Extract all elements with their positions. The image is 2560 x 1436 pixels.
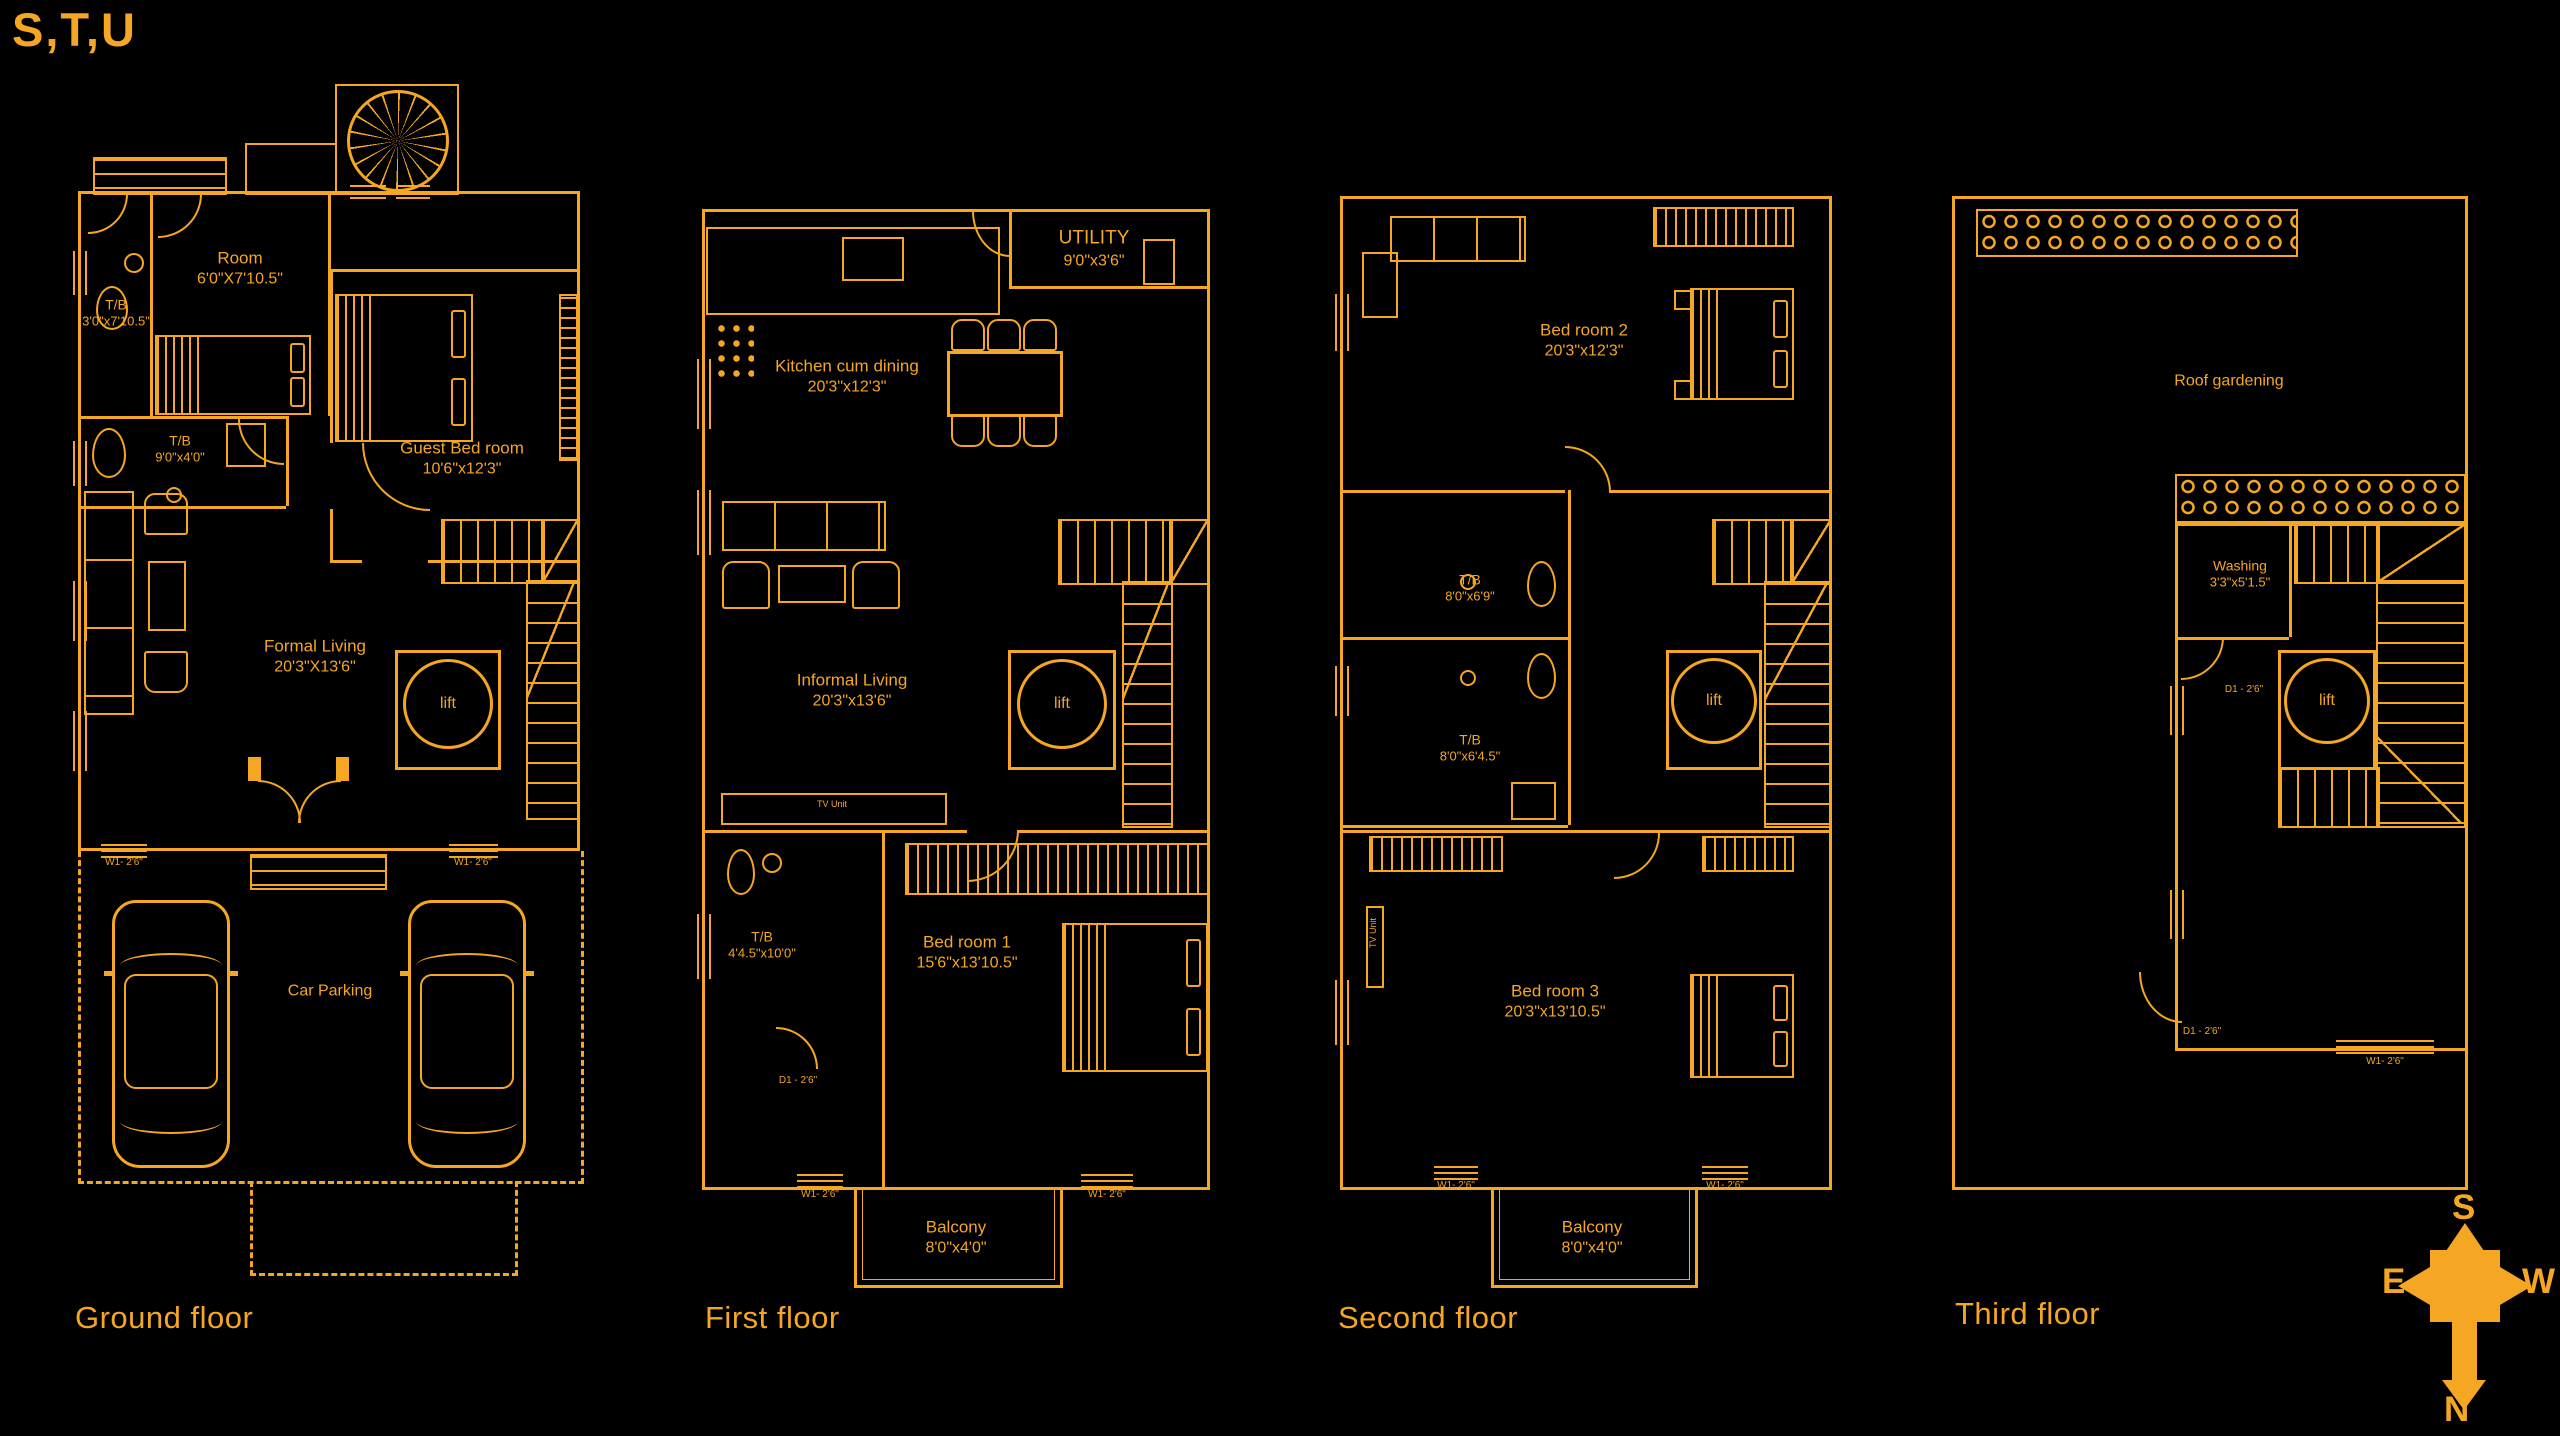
dining-chair (951, 319, 985, 351)
armchair (852, 561, 900, 609)
stair-diagonal (2376, 736, 2462, 824)
room-label-guest: Guest Bed room 10'6"x12'3" (400, 438, 524, 481)
wall (330, 509, 333, 560)
toilet-icon (92, 428, 126, 478)
rear-window (416, 1108, 518, 1134)
room-label-tb1: T/B 3'0"x7'10.5" (82, 295, 150, 330)
room-label-kitchen: Kitchen cum dining 20'3"x12'3" (775, 356, 919, 399)
ground-floor-label: Ground floor (75, 1300, 253, 1336)
window (396, 185, 430, 199)
room-label-washing: Washing 3'3"x5'1.5" (2210, 556, 2270, 591)
wardrobe (905, 843, 1209, 895)
mirror (400, 971, 409, 976)
tv-console (721, 793, 947, 825)
compass-point-top (2446, 1223, 2484, 1251)
stair-run (1058, 519, 1173, 585)
stair-diagonal (1169, 519, 1209, 585)
room-label-bed3: Bed room 3 20'3"x13'10.5" (1504, 981, 1605, 1024)
car-icon (408, 900, 526, 1168)
lift-label: lift (1054, 695, 1070, 713)
stair-diagonal (2376, 523, 2466, 584)
floor-plan-sheet: S,T,U (0, 0, 2560, 1436)
wall (1609, 490, 1832, 493)
compass-arrow-shaft (2452, 1322, 2477, 1380)
wall (330, 269, 333, 443)
stair-diagonal (541, 519, 579, 584)
mirror (229, 971, 238, 976)
door-tag: D1 - 2'6" (779, 1075, 817, 1086)
spiral-stair-icon (347, 90, 449, 192)
window (697, 914, 711, 979)
window (1335, 980, 1349, 1045)
bed (1690, 974, 1794, 1078)
pillow (451, 378, 466, 426)
room-label-utility: UTILITY 9'0"x3'6" (1059, 226, 1130, 271)
wall (702, 830, 967, 833)
room-label-tb2: T/B 9'0"x4'0" (155, 431, 205, 466)
car-cabin (124, 974, 218, 1089)
washbasin-icon (124, 253, 144, 273)
wardrobe (559, 294, 578, 461)
wall (882, 830, 885, 1190)
second-floor-label: Second floor (1338, 1300, 1518, 1336)
window-tag: W1- 2'6" (1706, 1180, 1744, 1191)
lift-label: lift (1706, 692, 1722, 710)
lift-label: lift (2319, 692, 2335, 710)
first-floor-plan: UTILITY 9'0"x3'6" Kitchen cum dining 20'… (702, 209, 1210, 1190)
dining-table (947, 351, 1063, 417)
door-post (248, 757, 261, 781)
lift-cab: lift (1017, 659, 1107, 749)
stair-run (1712, 519, 1794, 585)
door-tag: D1 - 2'6" (2183, 1026, 2221, 1037)
third-floor-label: Third floor (1955, 1296, 2100, 1332)
pillow (1773, 985, 1788, 1021)
window (350, 185, 386, 199)
stove-icon (710, 317, 754, 377)
guest-bed (335, 294, 473, 442)
wall (330, 269, 578, 272)
geyser (1143, 239, 1175, 285)
stair-run (441, 519, 545, 584)
wardrobe (1702, 836, 1794, 872)
window (797, 1174, 843, 1188)
wardrobe (1653, 207, 1794, 247)
bed (1062, 923, 1208, 1072)
room-label-bed1: Bed room 1 15'6"x13'10.5" (916, 932, 1017, 975)
window-tag: W1- 2'6" (2366, 1056, 2404, 1067)
window (697, 490, 711, 555)
wall (150, 191, 153, 416)
wall (286, 416, 289, 506)
armchair (144, 651, 188, 693)
stair-run (2278, 767, 2380, 828)
planter-strip (2175, 474, 2466, 523)
room-label-tb2: T/B 8'0"x6'4.5" (1440, 730, 1500, 765)
spiral-stair-box (335, 84, 459, 195)
dining-chair (987, 319, 1021, 351)
stair-run (2294, 523, 2380, 584)
window (2336, 1040, 2434, 1054)
window (697, 359, 711, 429)
rear-window (120, 1108, 222, 1134)
lift-cab: lift (403, 659, 493, 749)
room-label-roof: Roof gardening (2174, 372, 2283, 393)
wall (1017, 830, 1210, 833)
balcony-label: Balcony 8'0"x4'0" (925, 1217, 986, 1260)
stair-diagonal (1764, 581, 1828, 701)
door-post (336, 757, 349, 781)
pillow (290, 343, 305, 373)
compass-point-right (2500, 1267, 2532, 1305)
window-tag: W1- 2'6" (1437, 1180, 1475, 1191)
window-tag: W1- 2'6" (1088, 1189, 1126, 1200)
shower-tray (1511, 782, 1556, 820)
wall (2289, 523, 2292, 637)
window (2170, 686, 2184, 735)
ground-floor-plan: lift W1- 2'6" W1- 2'6" T/B 3'0"x7'10.5" … (78, 191, 580, 851)
room-label-tb1: T/B 8'0"x6'9" (1445, 570, 1495, 605)
shower-tray (226, 423, 266, 467)
room-label-room: Room 6'0"X7'10.5" (197, 248, 283, 291)
dining-chair (987, 415, 1021, 447)
armchair (144, 493, 188, 535)
porch-box (245, 143, 337, 195)
sofa (722, 501, 886, 551)
pillow (1186, 1008, 1201, 1056)
window (73, 711, 87, 771)
mattress-hatch (157, 337, 203, 413)
mattress-hatch (1064, 925, 1107, 1070)
washbasin-icon (762, 853, 782, 873)
pillow (451, 310, 466, 358)
mirror (525, 971, 534, 976)
entry-steps (93, 157, 227, 195)
room-label-tb: T/B 4'4.5"x10'0" (728, 927, 796, 962)
window (73, 441, 87, 486)
sofa (84, 491, 134, 715)
dining-chair (1023, 415, 1057, 447)
pillow (1773, 350, 1788, 388)
dining-chair (951, 415, 985, 447)
sofa (1390, 216, 1526, 262)
wall (1568, 490, 1571, 825)
pillow (1186, 939, 1201, 987)
compass-square (2430, 1250, 2500, 1322)
wall (1340, 637, 1568, 640)
kitchen-sink (842, 237, 904, 281)
first-floor-label: First floor (705, 1300, 840, 1336)
window (1434, 1166, 1478, 1180)
window (1335, 294, 1349, 351)
stair-diagonal (526, 580, 575, 700)
pillow (1773, 1031, 1788, 1067)
bed (1690, 288, 1794, 400)
room-label-bed2: Bed room 2 20'3"x12'3" (1540, 320, 1628, 363)
planter-strip (1976, 209, 2298, 257)
wall (1340, 830, 1832, 833)
wall (330, 560, 362, 563)
room-label-formal: Formal Living 20'3"X13'6" (264, 636, 366, 679)
lift-cab: lift (2284, 658, 2370, 744)
car-parking-label: Car Parking (288, 982, 372, 1003)
toilet-icon (727, 849, 755, 895)
door-tag: D1 - 2'6" (2225, 684, 2263, 695)
mattress-hatch (337, 296, 377, 440)
window-tag: W1- 2'6" (801, 1189, 839, 1200)
driveway-boundary (250, 1181, 518, 1276)
window (2170, 890, 2184, 939)
single-bed (155, 335, 311, 415)
tap-icon (1460, 670, 1476, 686)
porch-steps (250, 854, 387, 890)
compass-arrow-head (2442, 1380, 2486, 1410)
armchair (722, 561, 770, 609)
tv-unit-label: TV Unit (817, 799, 847, 809)
second-floor-plan: Bed room 2 20'3"x12'3" T/B 8'0"x6'9" T/B… (1340, 196, 1832, 1190)
stair-diagonal (1122, 581, 1169, 701)
third-floor-plan: Roof gardening Washing 3'3"x5'1.5" D1 - … (1952, 196, 2468, 1190)
dining-chair (1023, 319, 1057, 351)
pillow (1773, 300, 1788, 338)
wall (1340, 825, 1568, 828)
tv-unit-label: TV Unit (1368, 918, 1378, 948)
window (1702, 1166, 1748, 1180)
coffee-table (778, 565, 846, 603)
balcony-label: Balcony 8'0"x4'0" (1561, 1217, 1622, 1260)
pillow (290, 377, 305, 407)
lift-label: lift (440, 695, 456, 713)
mirror (104, 971, 113, 976)
mattress-hatch (1692, 290, 1722, 398)
page-title: S,T,U (12, 2, 137, 57)
wall (1340, 490, 1565, 493)
wardrobe (1369, 836, 1503, 872)
window (1335, 666, 1349, 716)
stair-diagonal (1790, 519, 1832, 585)
nightstand (1674, 380, 1692, 400)
compass-point-left (2398, 1267, 2430, 1305)
car-cabin (420, 974, 514, 1089)
toilet-icon (1527, 653, 1556, 699)
car-icon (112, 900, 230, 1168)
mattress-hatch (1692, 976, 1722, 1076)
lift-cab: lift (1671, 658, 1757, 744)
nightstand (1674, 290, 1692, 310)
toilet-icon (1527, 561, 1556, 607)
coffee-table (148, 561, 186, 631)
compass-south-label: S (2452, 1188, 2475, 1228)
window (73, 581, 87, 641)
sofa (1362, 252, 1398, 318)
window (1081, 1174, 1133, 1188)
room-label-informal: Informal Living 20'3"x13'6" (797, 670, 908, 713)
wall (1009, 286, 1210, 289)
window (73, 251, 87, 295)
compass-rose: S E W N (2380, 1185, 2560, 1435)
